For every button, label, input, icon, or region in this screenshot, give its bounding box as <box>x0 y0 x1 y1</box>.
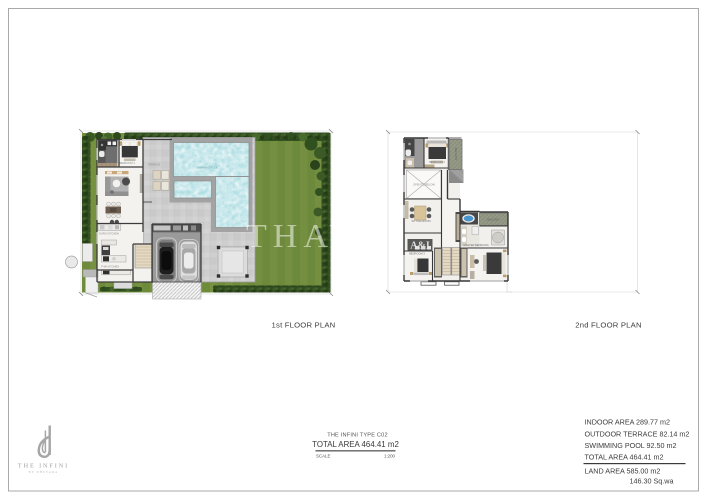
svg-text:BALCONY: BALCONY <box>454 148 458 161</box>
svg-text:BEDROOM 1: BEDROOM 1 <box>119 161 135 165</box>
svg-text:BALCONY: BALCONY <box>487 218 500 222</box>
svg-text:EURO KITCHEN: EURO KITCHEN <box>99 232 119 236</box>
svg-text:146.30 Sq.wa: 146.30 Sq.wa <box>630 477 674 486</box>
svg-text:BY DHEVARA: BY DHEVARA <box>29 471 59 474</box>
svg-text:THE INFINI: THE INFINI <box>18 463 69 470</box>
svg-text:1st FLOOR PLAN: 1st FLOOR PLAN <box>272 321 336 330</box>
svg-text:MASTER BEDROOM: MASTER BEDROOM <box>464 243 489 247</box>
svg-text:SITTING ROOM: SITTING ROOM <box>411 219 430 223</box>
svg-text:SWIMMING POOL 92.50 m2: SWIMMING POOL 92.50 m2 <box>585 441 677 450</box>
svg-text:TERRACE: TERRACE <box>148 163 161 167</box>
svg-text:OUTDOOR TERRACE 82.14 m2: OUTDOOR TERRACE 82.14 m2 <box>585 430 690 439</box>
svg-text:INDOOR AREA 289.77 m2: INDOOR AREA 289.77 m2 <box>585 418 671 427</box>
svg-text:THE INFINI TYPE C02: THE INFINI TYPE C02 <box>327 433 388 439</box>
svg-text:BEDROOM 2: BEDROOM 2 <box>429 160 445 164</box>
svg-text:TOTAL AREA 464.41 m2: TOTAL AREA 464.41 m2 <box>585 453 664 462</box>
svg-text:LAND AREA 585.00 m2: LAND AREA 585.00 m2 <box>585 467 661 476</box>
svg-text:2nd FLOOR PLAN: 2nd FLOOR PLAN <box>575 321 641 330</box>
svg-text:SWIMMING POOL: SWIMMING POOL <box>196 166 218 170</box>
svg-text:SCALE: SCALE <box>316 454 330 459</box>
svg-text:A&I: A&I <box>410 241 430 252</box>
svg-text:THAV: THAV <box>246 218 360 255</box>
svg-text:BEDROOM 3: BEDROOM 3 <box>409 252 425 256</box>
svg-text:OPEN TO BELOW: OPEN TO BELOW <box>413 183 435 187</box>
svg-text:1:200: 1:200 <box>384 454 396 459</box>
svg-text:TOTAL AREA 464.41 m2: TOTAL AREA 464.41 m2 <box>312 440 399 449</box>
svg-text:THAI KITCHEN: THAI KITCHEN <box>101 265 119 269</box>
